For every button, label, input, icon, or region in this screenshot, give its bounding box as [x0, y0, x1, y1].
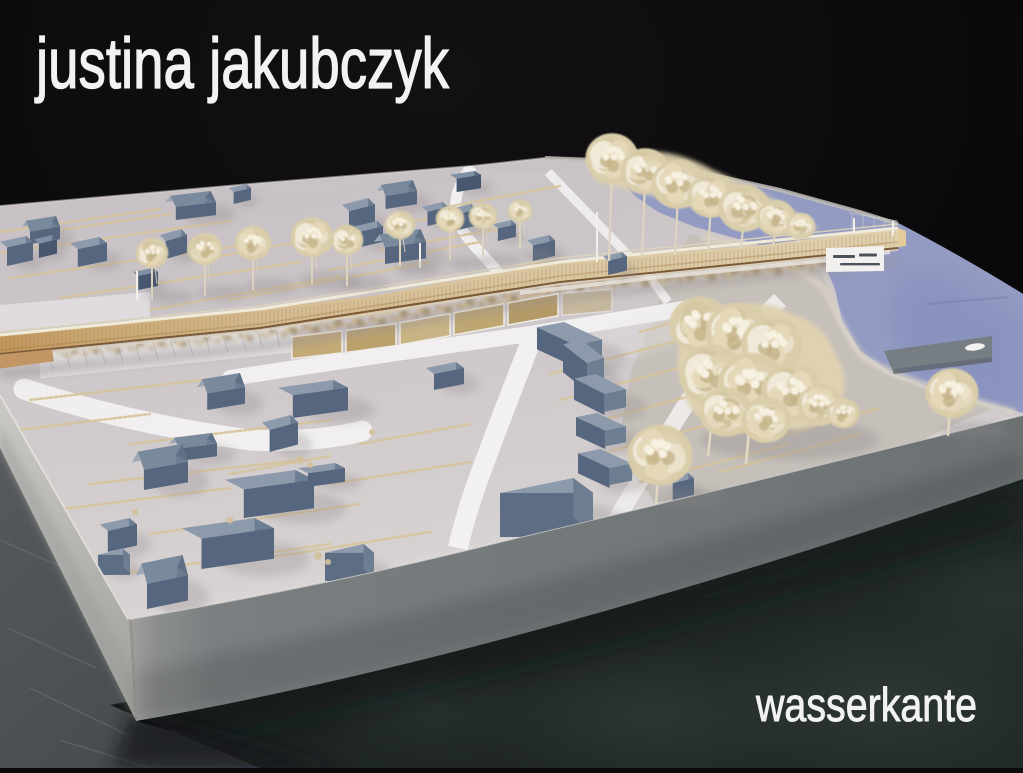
svg-text:wasserkante: wasserkante — [755, 678, 977, 731]
svg-text:justina jakubczyk: justina jakubczyk — [34, 25, 449, 104]
